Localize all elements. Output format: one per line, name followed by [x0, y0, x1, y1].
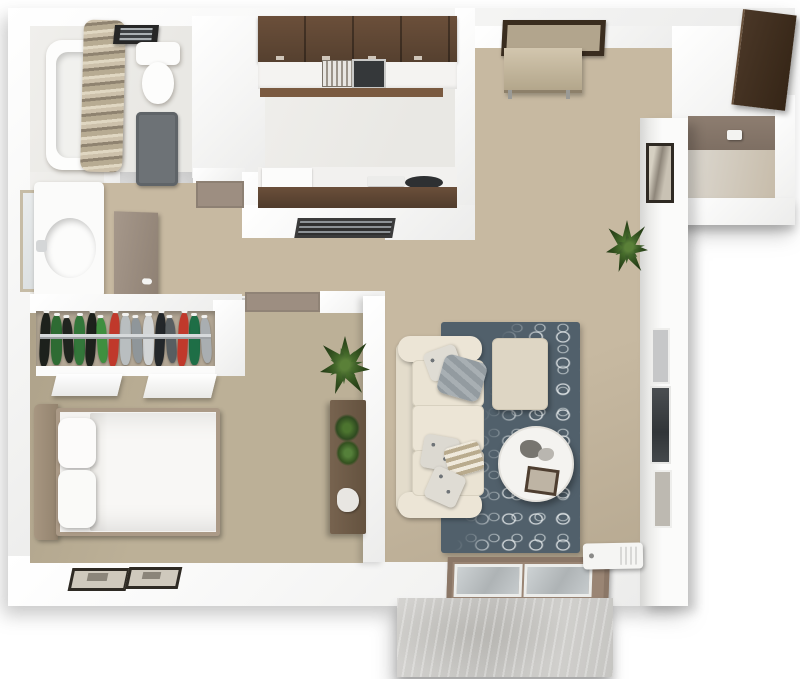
console-plant-2	[336, 440, 360, 466]
frame-1-print	[87, 573, 109, 581]
floor-plan-canvas	[0, 0, 800, 679]
vanity-counter	[34, 182, 104, 298]
toilet-bowl	[142, 62, 174, 104]
table-decor-tray	[524, 466, 559, 496]
range-vent	[294, 218, 396, 238]
closet-interior	[36, 311, 215, 368]
garment-item	[74, 315, 84, 365]
ceiling-vent-grill	[119, 28, 152, 41]
ottoman	[492, 338, 548, 410]
dishwasher	[262, 168, 312, 187]
thermostat-box	[727, 130, 742, 140]
bedroom-console	[330, 400, 366, 534]
bedroom-wall-frame-2	[125, 567, 183, 589]
ac-unit	[583, 542, 643, 569]
storage-floor	[688, 150, 775, 200]
garment-item	[39, 312, 52, 367]
garment-item	[143, 315, 153, 365]
wall-divider	[363, 296, 385, 562]
entry-door-leaf	[504, 48, 582, 93]
frame-2-print	[142, 572, 161, 579]
south-counter-walnut	[258, 187, 457, 208]
sofa	[396, 336, 484, 518]
column-art-frame	[646, 143, 674, 203]
garment-item	[153, 312, 166, 367]
window-niche-upper	[651, 328, 670, 384]
ac-vent	[620, 547, 638, 565]
garment-item	[165, 316, 179, 363]
console-plant-1	[334, 414, 360, 442]
bath-threshold	[196, 181, 244, 208]
wall-bath-kitchen-block	[192, 16, 265, 178]
entry-floor-corner	[640, 48, 672, 128]
bed	[56, 408, 220, 536]
patio-slab	[397, 598, 613, 677]
floor-plan	[0, 0, 800, 679]
garment-item	[189, 315, 199, 365]
wall-nook-bottom	[672, 198, 795, 225]
toilet	[136, 42, 180, 104]
closet-garments	[40, 313, 211, 366]
vanity-sink	[44, 218, 96, 278]
kitchen-sink	[352, 59, 386, 89]
hall-door-leaf	[114, 211, 158, 297]
closet-sliding-door-right	[143, 374, 217, 398]
upper-cabinets	[258, 16, 457, 62]
console-decor	[337, 488, 359, 512]
ac-indicator	[589, 553, 594, 558]
table-decor-rock-2	[538, 448, 554, 461]
bath-mat	[136, 112, 178, 186]
bed-headboard	[34, 404, 58, 540]
bed-pillow-bottom	[58, 470, 96, 528]
window-niche-lower	[653, 470, 672, 528]
door-hinge-left	[508, 90, 512, 99]
closet-rod	[40, 334, 211, 337]
bed-pillow-top	[58, 418, 96, 468]
wall-kitchen-right	[455, 8, 475, 208]
garment-item	[199, 316, 213, 363]
range-vent-grill	[298, 221, 392, 235]
faucet	[36, 240, 47, 252]
bedroom-doorway-threshold	[245, 292, 320, 312]
bedroom-wall-frame-1	[68, 568, 131, 591]
garment-item	[130, 316, 144, 363]
garment-item	[84, 312, 97, 367]
garment-item	[176, 312, 189, 367]
garment-item	[107, 312, 120, 367]
closet-sliding-door-left	[51, 374, 122, 396]
bed-duvet	[90, 413, 216, 531]
tv-screen	[650, 386, 671, 464]
coffee-table	[498, 426, 574, 502]
door-hinge-right	[566, 90, 570, 99]
garment-item	[120, 315, 130, 365]
slider-pane-left	[453, 564, 522, 597]
garment-item	[61, 316, 75, 363]
garment-item	[51, 315, 61, 365]
hallway-floor	[242, 238, 385, 296]
door-handle	[142, 278, 152, 284]
wall-closet-right	[213, 300, 245, 376]
slider-pane-right	[523, 564, 592, 597]
counter-appliance	[368, 176, 404, 186]
north-counter-edge	[260, 88, 443, 97]
wall-left	[8, 8, 32, 606]
sink-drainboard	[322, 60, 354, 87]
